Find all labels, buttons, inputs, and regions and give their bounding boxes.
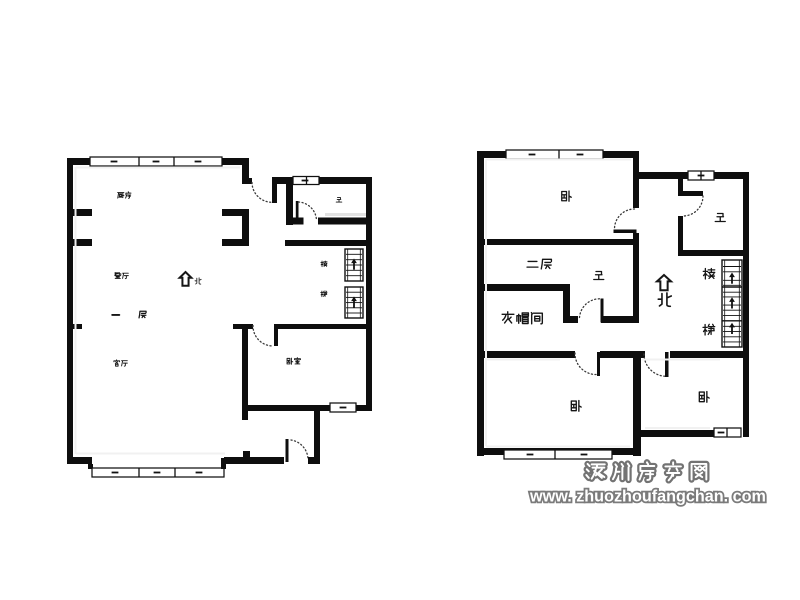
svg-text:www. zhuozhoufangchan. com: www. zhuozhoufangchan. com (529, 488, 766, 506)
